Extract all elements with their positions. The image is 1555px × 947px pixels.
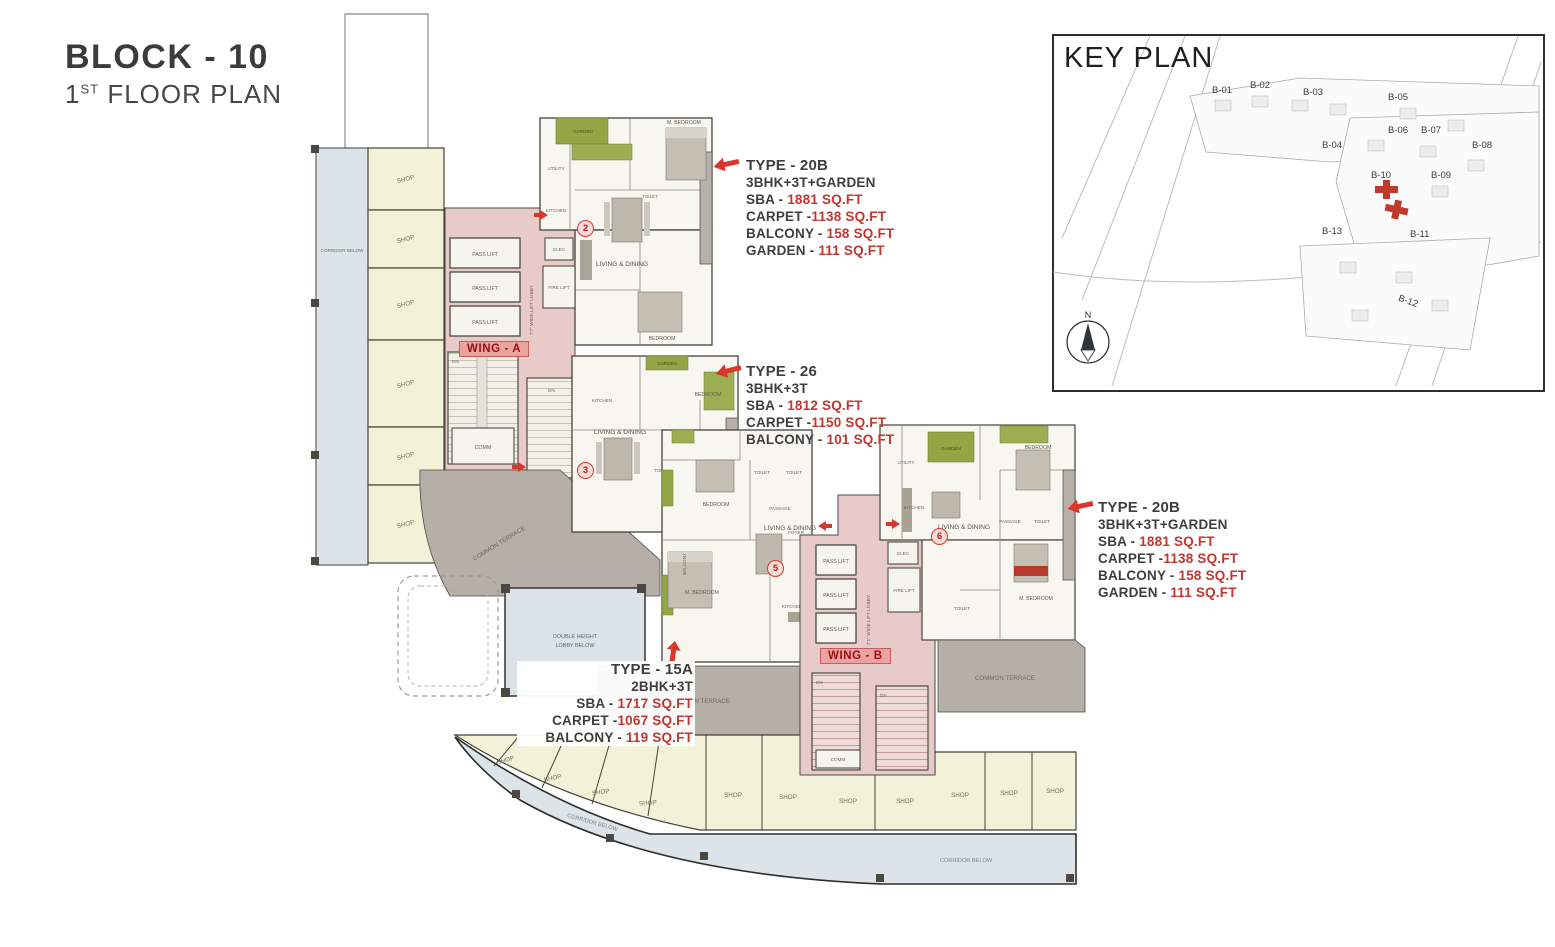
compass: N [1067,310,1109,363]
floor-number: 1 [65,79,80,109]
unit-config: 3BHK+3T+GARDEN [1098,516,1246,533]
unit-config: 2BHK+3T [517,678,695,695]
key-plan-block-b03: B-03 [1303,87,1323,98]
spec-row: SBA - 1881 SQ.FT [1098,533,1246,550]
stair-dn-label: DN [816,680,823,685]
garden-label: GARDEN [573,129,593,134]
double-height-label: DOUBLE HEIGHT [553,634,598,640]
pass-lift-label: PASS LIFT [472,286,498,292]
corridor-below-label: CORRIDOR BELOW [321,248,365,253]
shop-label: SHOP [1000,790,1018,797]
room-label: KITCHEN [904,505,924,510]
floor-subtitle: 1ST FLOOR PLAN [65,79,282,110]
unit-type15a: BEDROOM TOILET TOILET PASSAGE LIVING & D… [662,430,816,662]
unit-config: 3BHK+3T+GARDEN [746,174,894,191]
key-plan-block-b05: B-05 [1388,92,1408,103]
room-label: M. BEDROOM [1019,596,1053,602]
room-label: BEDROOM [695,392,722,398]
room-label: BEDROOM [649,336,676,342]
elec-label: ELEC [897,551,910,556]
shop-label: SHOP [1046,788,1064,795]
key-plan-block-b02: B-02 [1250,80,1270,91]
spec-row: CARPET -1150 SQ.FT [746,414,894,431]
room-label: M. BEDROOM [685,590,719,596]
annotation-type-26: TYPE - 26 3BHK+3T SBA - 1812 SQ.FT CARPE… [746,363,894,448]
unit-marker-2: 2 [577,220,594,237]
stair-dn-label: DN [548,388,555,393]
wing-a-label: WING - A [459,341,529,357]
room-label: PASSAGE [999,519,1021,524]
shop-label: SHOP [839,798,857,805]
common-terrace-label: COMMON TERRACE [975,675,1035,682]
pass-lift-label: PASS LIFT [823,559,849,565]
spec-row: BALCONY - 158 SQ.FT [746,225,894,242]
unit-config: 3BHK+3T [746,380,894,397]
unit-marker-3: 3 [577,462,594,479]
shop-label: SHOP [724,792,742,799]
floor-ordinal: ST [80,81,99,96]
stair-dn-label: DN [452,359,459,364]
room-label: UTILITY [897,460,914,465]
title-block: BLOCK - 10 1ST FLOOR PLAN [65,38,282,110]
shop-label: SHOP [639,799,657,807]
fire-lift-label: FIRE LIFT [548,285,569,290]
unit-type-title: TYPE - 26 [746,363,894,380]
key-plan-block-b04: B-04 [1322,140,1342,151]
shop-label: SHOP [779,794,797,801]
room-label: BEDROOM [703,502,730,508]
room-label: BALCONY [682,553,687,575]
room-label: TOILET [786,470,802,475]
right-terrace: COMMON TERRACE [938,640,1085,712]
unit-marker-5: 5 [767,560,784,577]
lift-lobby-label: 7'7" WIDE LIFT LOBBY [529,284,535,335]
key-plan-block-b08: B-08 [1472,140,1492,151]
room-label: KITCHEN [592,398,612,403]
page-title: BLOCK - 10 [65,38,282,77]
unit-type-title: TYPE - 15A [517,661,695,678]
double-height-label: LOBBY BELOW [556,643,596,649]
key-plan-block-b01: B-01 [1212,85,1232,96]
comm-label: COMM [475,445,491,451]
wing-b-label: WING - B [820,648,891,664]
comm-label: COMM [831,757,846,762]
garden-label: GARDEN [941,446,961,451]
room-label: BEDROOM [1025,445,1052,451]
room-label: TOILET [642,194,658,199]
spec-row: GARDEN - 111 SQ.FT [1098,584,1246,601]
room-label: LIVING & DINING [596,261,648,268]
annotation-type-20b-right: TYPE - 20B 3BHK+3T+GARDEN SBA - 1881 SQ.… [1098,499,1246,601]
spec-row: BALCONY - 101 SQ.FT [746,431,894,448]
room-label: TOILET [954,606,970,611]
room-label: KITCHEN [546,208,566,213]
annotation-type-20b-top: TYPE - 20B 3BHK+3T+GARDEN SBA - 1881 SQ.… [746,157,894,259]
corridor-below-label: CORRIDOR BELOW [940,858,993,864]
key-plan-block-b11: B-11 [1410,229,1429,240]
pass-lift-label: PASS LIFT [472,320,498,326]
fire-lift-label: FIRE LIFT [893,588,914,593]
lift-lobby-label: 7'1" WIDE LIFT LOBBY [866,594,872,645]
spec-row: BALCONY - 119 SQ.FT [517,729,695,746]
key-plan-block-b10: B-10 [1371,170,1391,181]
pass-lift-label: PASS LIFT [823,627,849,633]
room-label: KITCHEN [782,604,802,609]
elec-label: ELEC [553,247,566,252]
floor-plan-sheet: CORRIDOR BELOW SHOP SHOP SHOP SHOP SHOP … [0,0,1555,947]
room-label: FOYER [788,530,805,535]
room-label: M. BEDROOM [667,120,701,126]
bottom-shops: SHOP SHOP SHOP SHOP SHOP SHOP SHOP SHOP … [455,735,1076,884]
pass-lift-label: PASS LIFT [472,252,498,258]
spec-row: CARPET -1138 SQ.FT [1098,550,1246,567]
shop-label: SHOP [896,798,914,805]
unit-type-title: TYPE - 20B [1098,499,1246,516]
key-plan-title: KEY PLAN [1064,42,1213,75]
shop-label: SHOP [951,792,969,799]
spec-row: BALCONY - 158 SQ.FT [1098,567,1246,584]
annotation-type-15a: TYPE - 15A 2BHK+3T SBA - 1717 SQ.FT CARP… [517,661,695,746]
room-label: TOILET [754,470,770,475]
spec-row: CARPET -1138 SQ.FT [746,208,894,225]
key-plan-block-b06: B-06 [1388,125,1408,136]
spec-row: SBA - 1717 SQ.FT [517,695,695,712]
stair-dn-label: DN [880,693,887,698]
room-label: PASSAGE [769,506,791,511]
room-label: TOILET [1034,519,1050,524]
floor-text: FLOOR PLAN [99,79,282,109]
key-plan-block-b07: B-07 [1421,125,1441,136]
spec-row: GARDEN - 111 SQ.FT [746,242,894,259]
compass-n-label: N [1085,310,1092,320]
key-plan-block-b13: B-13 [1322,226,1342,237]
garden-label: GARDEN [657,361,677,366]
unit-marker-6: 6 [931,528,948,545]
pass-lift-label: PASS LIFT [823,593,849,599]
spec-row: SBA - 1812 SQ.FT [746,397,894,414]
spec-row: CARPET -1067 SQ.FT [517,712,695,729]
spec-row: SBA - 1881 SQ.FT [746,191,894,208]
key-plan-block-b09: B-09 [1431,170,1451,181]
unit-type-title: TYPE - 20B [746,157,894,174]
entry-arrow [818,521,832,531]
room-label: UTILITY [547,166,564,171]
key-plan-sketch: N [1053,36,1541,386]
room-label: LIVING & DINING [594,429,646,436]
annotation-arrow-left [712,155,740,174]
